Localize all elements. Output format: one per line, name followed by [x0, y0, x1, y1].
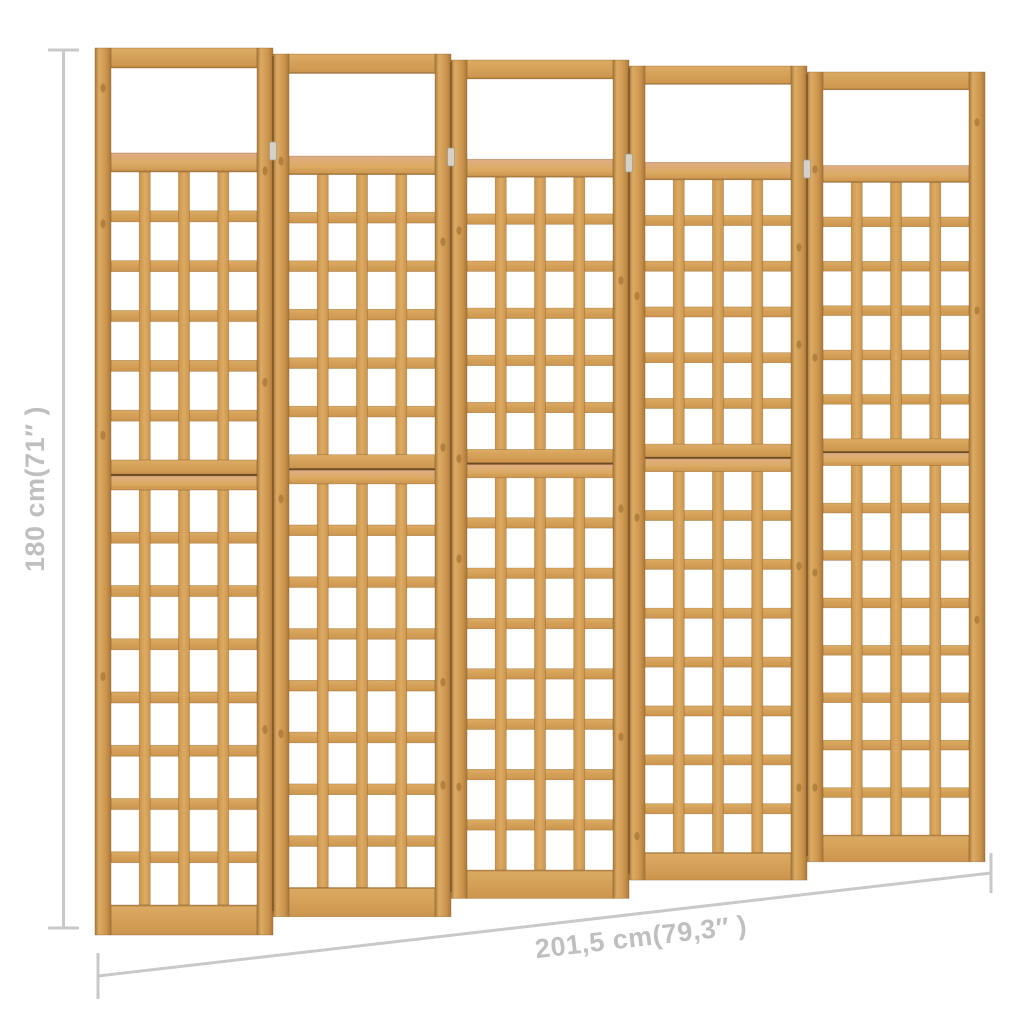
panel-hinge [448, 148, 455, 166]
trellis-panel-5 [807, 72, 985, 862]
panel-hinge [270, 142, 277, 160]
height-dimension-label: 180 cm(71″ ) [20, 406, 50, 572]
trellis-panel-3 [451, 60, 629, 898]
panel-hinge [804, 160, 811, 178]
panel-junction-seam [628, 68, 630, 874]
height-dimension: 180 cm(71″ ) [20, 50, 79, 928]
panel-hinge [626, 154, 633, 172]
trellis [95, 48, 985, 935]
width-dimension-label: 201,5 cm(79,3″ ) [533, 910, 748, 964]
panel-junction-seam [806, 74, 808, 856]
panel-junction-seam [450, 62, 452, 892]
trellis-panel-2 [273, 54, 451, 917]
product-dimension-image: 180 cm(71″ ) 201,5 cm(79,3″ ) [0, 0, 1024, 1024]
scene-svg: 180 cm(71″ ) 201,5 cm(79,3″ ) [0, 0, 1024, 1024]
trellis-panel-1 [95, 48, 273, 935]
panel-junction-seam [272, 56, 274, 911]
trellis-panel-4 [629, 66, 807, 880]
